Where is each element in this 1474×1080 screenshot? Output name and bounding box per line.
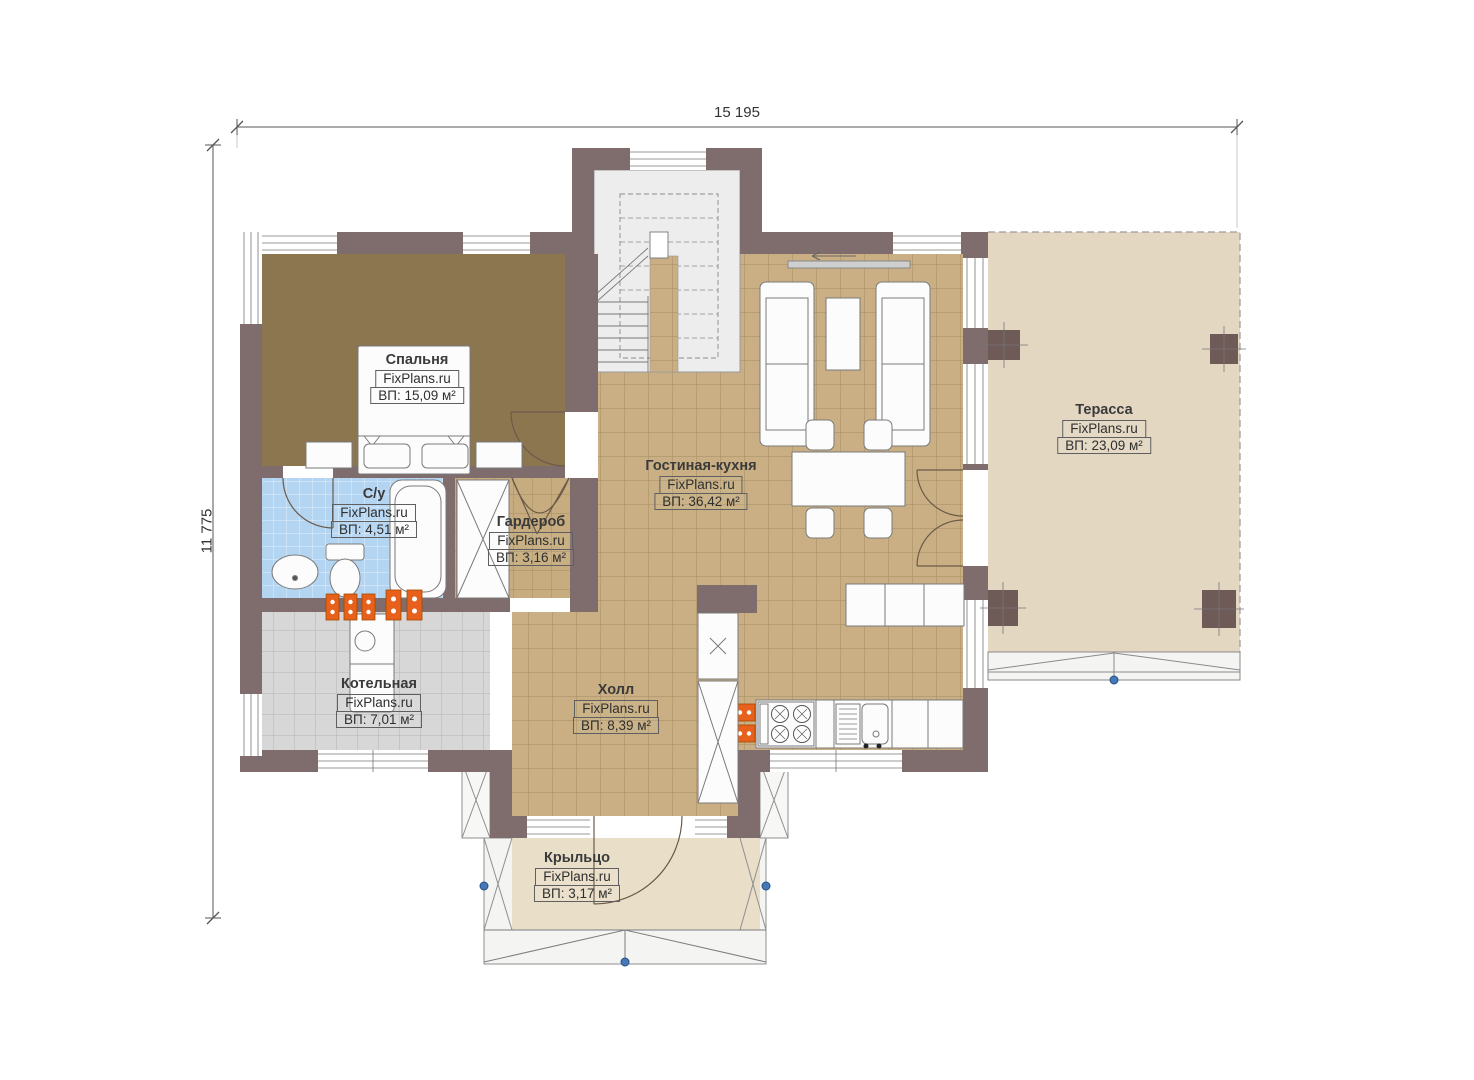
wall [963,254,988,258]
watermark: FixPlans.ru [535,868,619,886]
wall [570,478,598,612]
room-label-hall: Холл FixPlans.ru ВП: 8,39 м² [573,682,659,734]
sink-drain [293,576,298,581]
window [963,258,988,328]
wall [337,232,463,254]
watermark: FixPlans.ru [332,504,416,522]
nightstand-left [306,442,352,468]
watermark: FixPlans.ru [574,700,658,718]
window [630,148,706,170]
radiator [407,590,422,620]
room-area: ВП: 3,16 м² [488,549,574,567]
wall [565,254,598,412]
room-area: ВП: 3,17 м² [534,885,620,903]
room-name: Спальня [370,352,464,368]
window [240,694,262,756]
pillow [364,444,410,468]
door-opening-terrace [963,470,988,566]
wall [530,232,572,254]
room-label-wardrobe: Гардероб FixPlans.ru ВП: 3,16 м² [488,514,574,566]
room-label-bathroom: С/у FixPlans.ru ВП: 4,51 м² [331,486,417,538]
window [318,750,428,772]
door-opening-entry [590,816,695,838]
wall [961,232,988,254]
dimension-width-label: 15 195 [714,104,760,121]
window [240,232,262,324]
room-area: ВП: 4,51 м² [331,521,417,539]
room-name: Гостиная-кухня [645,458,756,474]
room-name: Крыльцо [534,850,620,866]
watermark: FixPlans.ru [1062,420,1146,438]
floor-plan-canvas: 15 195 11 775 Спальня FixPlans.ru ВП: 15… [0,0,1474,1080]
window [527,816,590,838]
stove [758,702,814,746]
stair-opening-strip [650,256,678,372]
wall [963,328,988,364]
watermark: FixPlans.ru [659,476,743,494]
window [695,816,727,838]
pillow [422,444,468,468]
room-name: Котельная [336,676,422,692]
watermark: FixPlans.ru [375,370,459,388]
bathroom-sink [272,555,318,589]
window [463,232,530,254]
wall [963,464,988,470]
radiator [344,594,357,620]
room-name: С/у [331,486,417,502]
wall [262,466,283,478]
nightstand-right [476,442,522,468]
floor-plan-drawing [0,0,1474,1080]
kitchen-island [846,584,964,626]
room-name: Гардероб [488,514,574,530]
terrace-steps [988,652,1240,684]
dimension-height-label: 11 775 [199,509,216,554]
step-marker [1110,676,1118,684]
sofa-left [760,282,814,446]
radiator [326,594,339,620]
radiator [362,594,375,620]
room-name: Холл [573,682,659,698]
room-label-terrace: Терасса FixPlans.ru ВП: 23,09 м² [1057,402,1151,454]
dining-chair [864,508,892,538]
dining-chair [864,420,892,450]
room-area: ВП: 15,09 м² [370,387,464,405]
wall [902,750,988,772]
room-area: ВП: 36,42 м² [654,493,748,511]
window [893,232,961,254]
dining-chair [806,420,834,450]
staircase [594,170,740,372]
hall-cabinet-small [698,613,738,679]
window [963,600,988,688]
wall [490,750,512,838]
wall [963,566,988,600]
hall-cabinet-tall [698,681,738,803]
room-label-bedroom: Спальня FixPlans.ru ВП: 15,09 м² [370,352,464,404]
window [770,750,902,772]
door-opening-bedroom [565,412,598,466]
window [963,364,988,464]
watermark: FixPlans.ru [337,694,421,712]
wall [240,324,262,694]
dining-table [792,452,905,506]
wall [740,148,762,254]
room-area: ВП: 7,01 м² [336,711,422,729]
dining-chair [806,508,834,538]
room-label-boiler: Котельная FixPlans.ru ВП: 7,01 м² [336,676,422,728]
wall [572,148,630,170]
tv-console [788,261,910,268]
radiator [386,590,401,620]
room-label-living: Гостиная-кухня FixPlans.ru ВП: 36,42 м² [645,458,756,510]
toilet-bowl [330,559,360,597]
toilet-tank [326,544,364,560]
room-name: Терасса [1057,402,1151,418]
room-label-porch: Крыльцо FixPlans.ru ВП: 3,17 м² [534,850,620,902]
room-area: ВП: 8,39 м² [573,717,659,735]
wall [762,232,893,254]
watermark: FixPlans.ru [489,532,573,550]
chimney-block [650,232,668,258]
room-area: ВП: 23,09 м² [1057,437,1151,455]
wall [697,585,757,613]
wall [963,688,988,750]
coffee-table [826,298,860,370]
